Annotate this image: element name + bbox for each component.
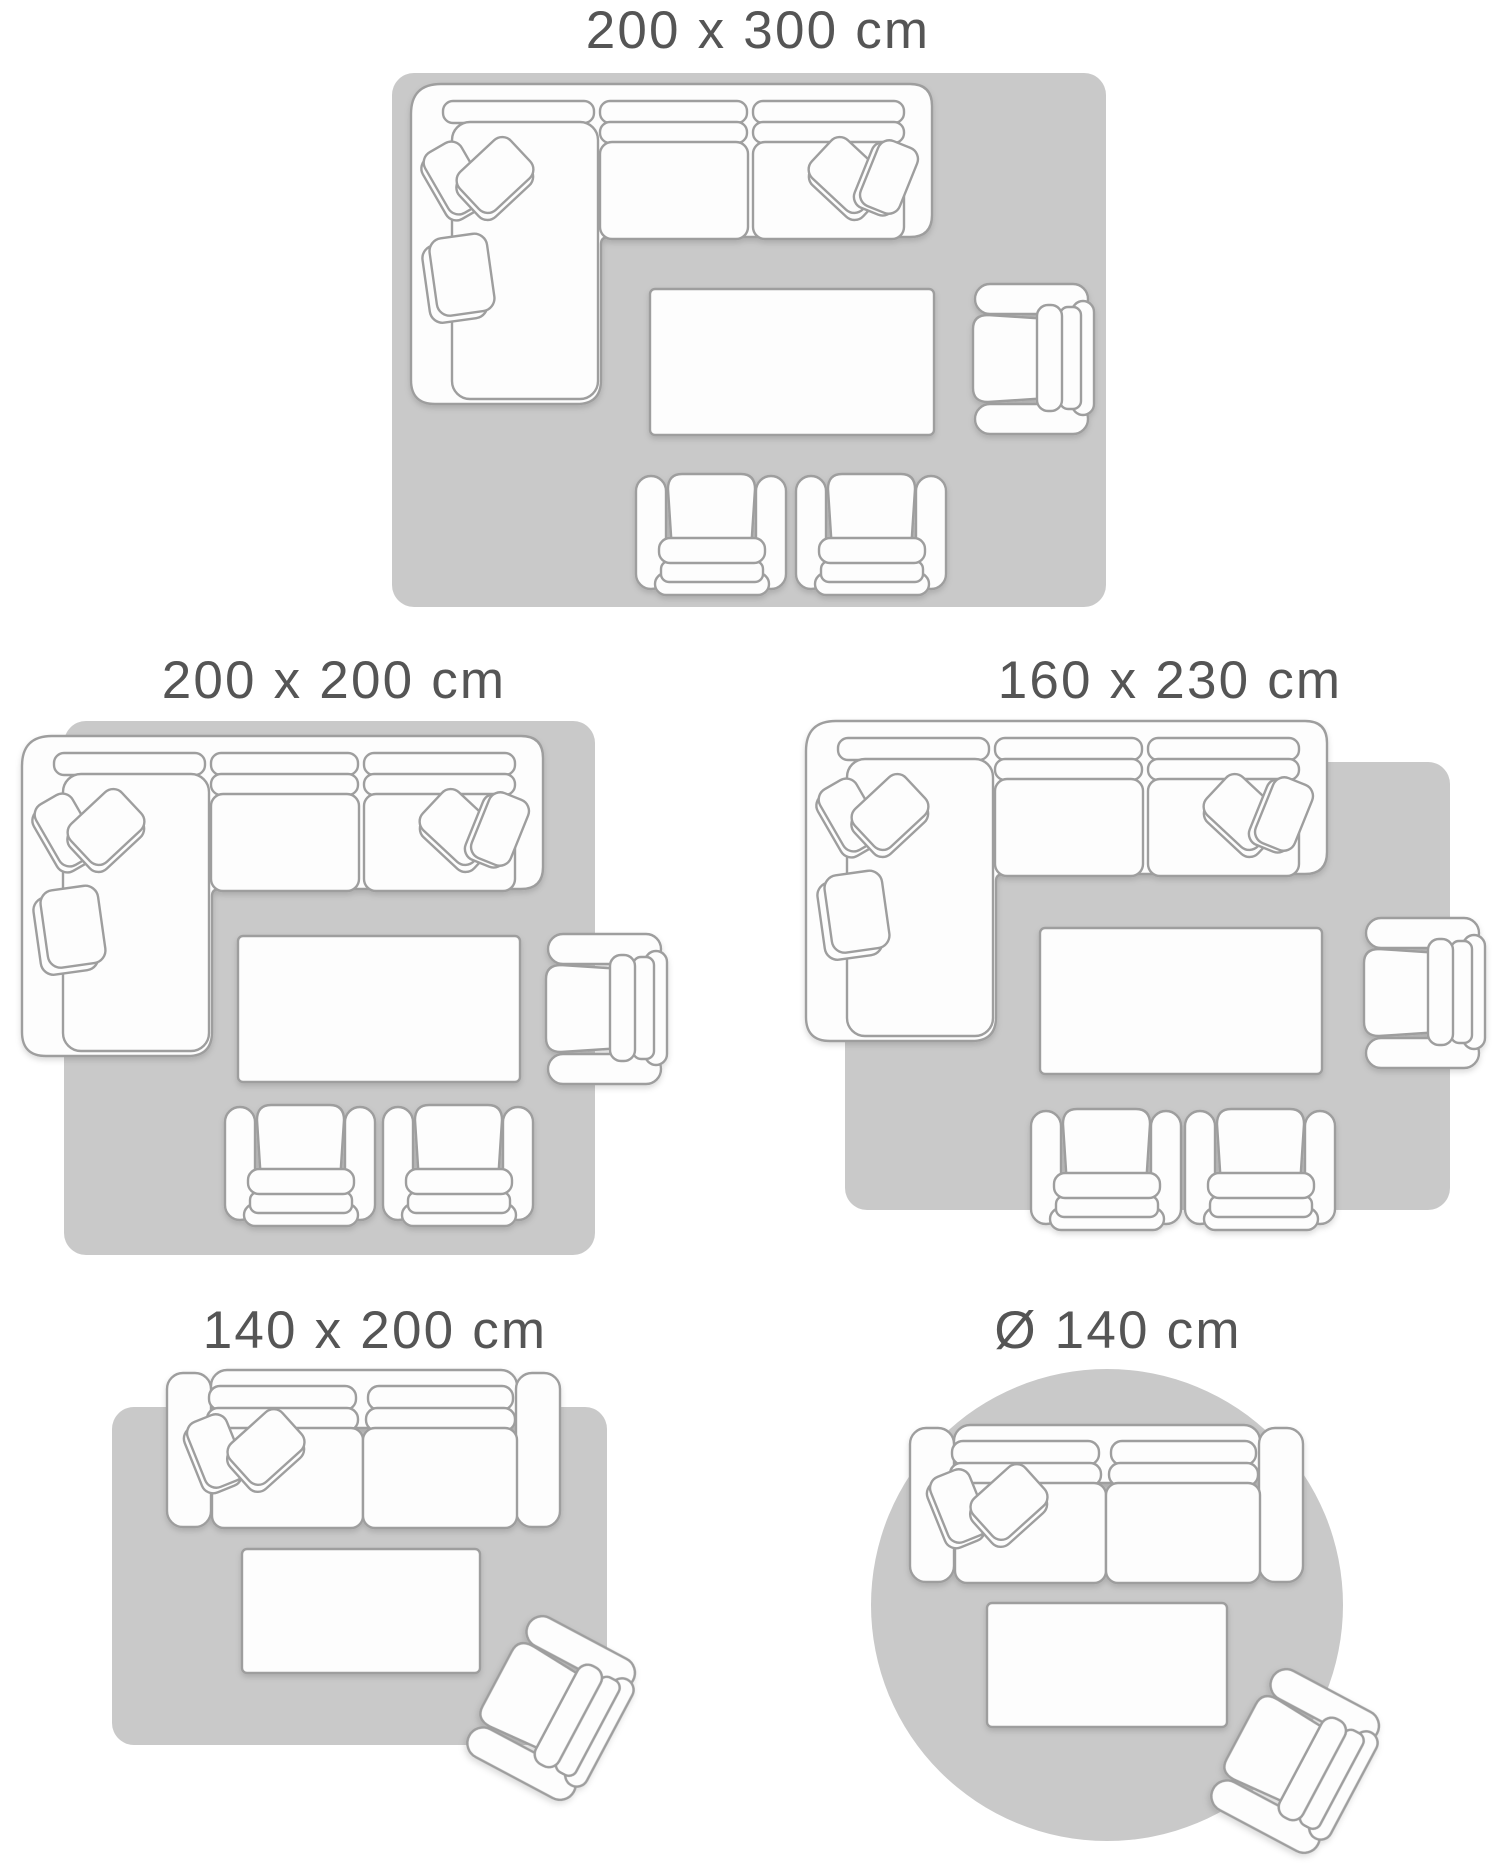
svg-text:Ø 140 cm: Ø 140 cm <box>994 1301 1241 1360</box>
svg-text:200 x 200 cm: 200 x 200 cm <box>162 651 507 710</box>
svg-text:200 x 300 cm: 200 x 300 cm <box>586 1 931 60</box>
svg-text:160 x 230 cm: 160 x 230 cm <box>998 651 1343 710</box>
svg-text:140 x 200 cm: 140 x 200 cm <box>203 1301 548 1360</box>
